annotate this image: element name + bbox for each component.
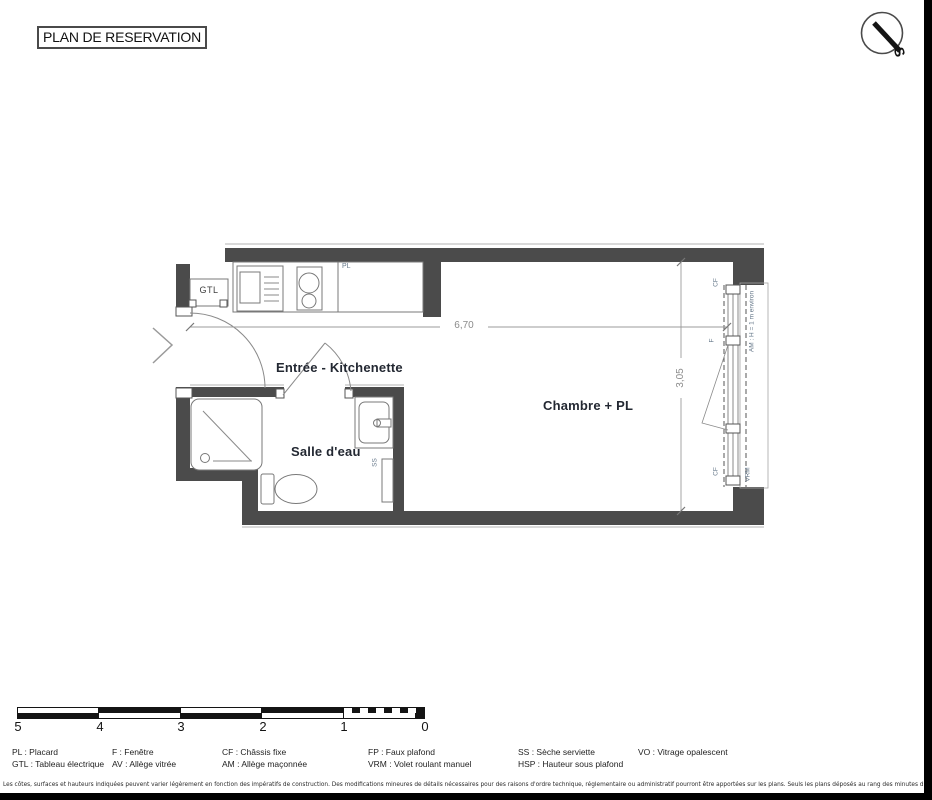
entrance-jamb-top: [176, 307, 192, 316]
legend-entry: GTL : Tableau électrique: [12, 758, 104, 770]
scale-number: 1: [337, 719, 351, 734]
window-label-am: AM : H = 1 m environ: [749, 284, 758, 360]
legend-column: SS : Sèche serviette HSP : Hauteur sous …: [518, 746, 623, 770]
plan-linework: [0, 0, 932, 800]
legend-entry: VRM : Volet roulant manuel: [368, 758, 471, 770]
scale-segment: [98, 708, 179, 718]
bathroom-jamb-left: [276, 389, 284, 398]
legend-entry: PL : Placard: [12, 746, 104, 758]
window-label-vrm: VRM: [745, 465, 752, 485]
scan-edge-bottom: [0, 793, 932, 800]
entrance-direction-chevron: [153, 328, 172, 363]
toilet-tank: [261, 474, 274, 504]
scale-number: 0: [418, 719, 432, 734]
floor-plan-page: PLAN DE RESERVATION S: [0, 0, 932, 800]
closet-pl-label: PL: [342, 263, 351, 270]
room-label-entree: Entrée - Kitchenette: [276, 360, 403, 375]
entrance-jamb-bottom: [176, 388, 192, 398]
gtl-label: GTL: [190, 285, 228, 295]
entrance-door-swing-arc: [190, 313, 265, 388]
page-title: PLAN DE RESERVATION: [37, 26, 207, 49]
legend-column: VO : Vitrage opalescent: [638, 746, 728, 758]
disclaimer-footnote: Les côtes, surfaces et hauteurs indiquée…: [3, 782, 928, 788]
toilet: [261, 474, 317, 504]
entrance-door: [176, 307, 265, 398]
legend-column: PL : Placard GTL : Tableau électrique: [12, 746, 104, 770]
legend-entry: VO : Vitrage opalescent: [638, 746, 728, 758]
dimension-depth-value: 3,05: [675, 358, 687, 398]
towel-radiator: [382, 459, 393, 502]
scale-number: 4: [93, 719, 107, 734]
compass-north-indicator: [850, 4, 916, 74]
window-label-f: F: [709, 334, 716, 348]
scale-segment: [261, 708, 342, 718]
scale-number: 5: [11, 719, 25, 734]
scale-segment: [18, 708, 98, 718]
legend-entry: CF : Châssis fixe: [222, 746, 307, 758]
scale-number: 3: [174, 719, 188, 734]
legend-entry: SS : Sèche serviette: [518, 746, 623, 758]
bathroom-jamb-right: [345, 389, 353, 398]
legend-entry: AV : Allège vitrée: [112, 758, 176, 770]
toilet-bowl: [275, 475, 317, 504]
scale-segment-subdivided: [343, 708, 424, 718]
window-label-cf-top: CF: [713, 276, 720, 290]
window-assembly: [702, 283, 768, 488]
window-label-cf-bottom: CF: [713, 465, 720, 479]
legend-column: F : Fenêtre AV : Allège vitrée: [112, 746, 176, 770]
legend-column: FP : Faux plafond VRM : Volet roulant ma…: [368, 746, 471, 770]
legend-entry: AM : Allège maçonnée: [222, 758, 307, 770]
room-label-chambre: Chambre + PL: [543, 398, 633, 413]
kitchenette-counter: [233, 262, 338, 312]
window-label-ss: SS: [372, 456, 379, 470]
scan-edge-right: [924, 0, 932, 800]
room-label-salle-eau: Salle d'eau: [291, 444, 361, 459]
scale-number: 2: [256, 719, 270, 734]
washbasin: [355, 397, 393, 448]
legend-entry: FP : Faux plafond: [368, 746, 471, 758]
legend-entry: F : Fenêtre: [112, 746, 176, 758]
scale-segment: [180, 708, 261, 718]
shower: [191, 399, 262, 470]
legend-column: CF : Châssis fixe AM : Allège maçonnée: [222, 746, 307, 770]
legend-entry: HSP : Hauteur sous plafond: [518, 758, 623, 770]
window-frame-lines: [728, 287, 738, 485]
scale-bar: [17, 707, 425, 719]
dimension-width-value: 6,70: [440, 320, 488, 331]
